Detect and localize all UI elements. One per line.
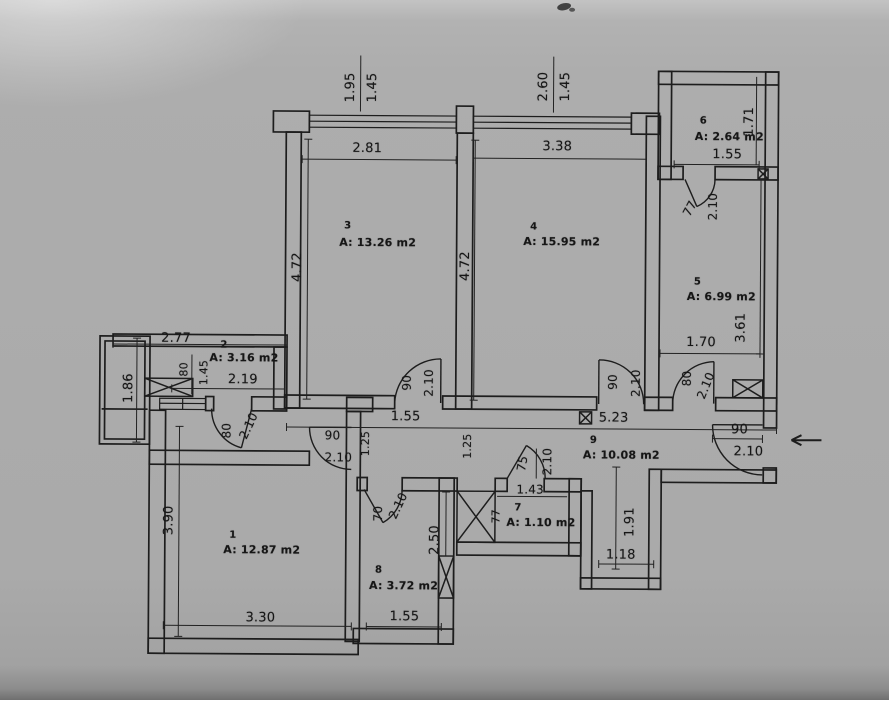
door-room8 [364,490,402,523]
door-room1 [309,427,351,469]
shaft-hatch [457,491,495,542]
ink-smudge [556,2,575,12]
doors-group [211,177,764,525]
door-room7 [507,445,545,478]
shaft-hatch [145,378,193,396]
door-room6 [685,179,715,206]
dim-symbol-box [580,412,592,424]
floorplan-scan: 1A: 12.87 m22A: 3.16 m23A: 13.26 m24A: 1… [0,0,889,700]
floorplan: 1A: 12.87 m22A: 3.16 m23A: 13.26 m24A: 1… [0,0,889,703]
door-entrance [712,425,762,475]
door-room2 [211,409,251,448]
shaft-hatch [438,556,453,598]
shaft-hatch [758,169,768,179]
plan-linework [0,0,889,703]
shaft-hatch [733,380,763,398]
door-room5 [673,361,714,403]
door-room3 [395,359,441,403]
door-room4 [599,360,644,404]
entrance-arrow [791,435,821,445]
